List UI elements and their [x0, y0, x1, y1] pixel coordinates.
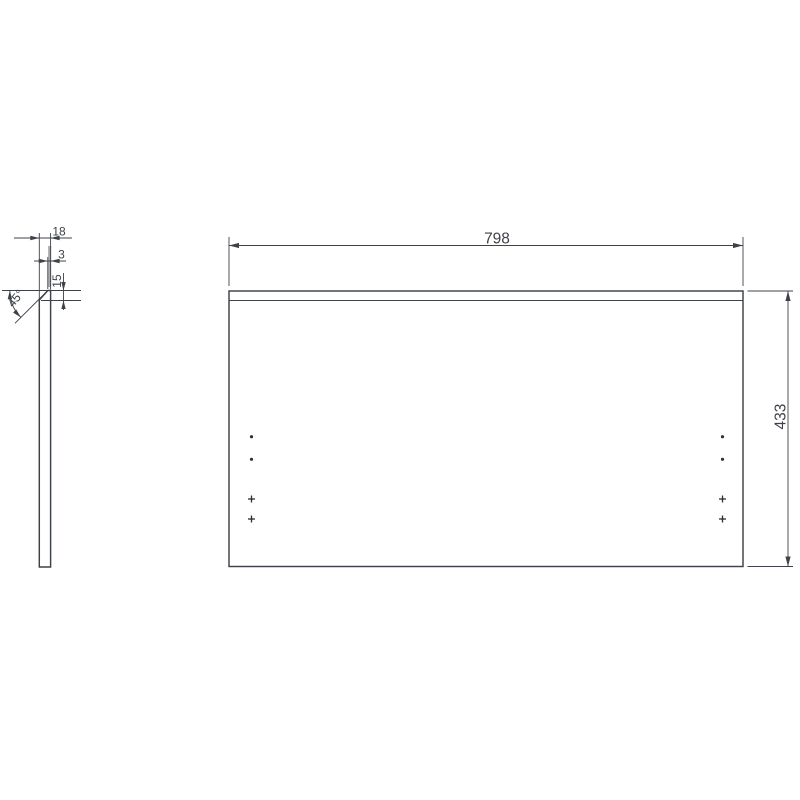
panel-profile-outline: [39, 291, 50, 568]
top-flat-label: 3: [58, 248, 65, 262]
drill-hole-cross-marker: [719, 496, 726, 503]
thickness-label: 18: [52, 225, 66, 239]
height-label: 433: [773, 404, 790, 430]
front-view: 798 433: [229, 231, 793, 567]
arrowhead: [13, 309, 21, 317]
drill-hole-marker: [250, 435, 253, 438]
dimension-thickness: 18: [14, 225, 72, 241]
panel-drawing-svg: 18 3 15: [0, 0, 800, 800]
chamfer-height-label: 15: [50, 274, 64, 288]
drill-hole-cross-marker: [248, 496, 255, 503]
width-label: 798: [484, 231, 510, 248]
dimension-height: 433: [748, 291, 794, 567]
arrowhead: [30, 236, 39, 240]
dimension-width: 798: [229, 231, 743, 287]
drill-hole-cross-marker: [248, 516, 255, 523]
drill-hole-cross-marker: [719, 516, 726, 523]
technical-drawing-canvas: 18 3 15: [0, 0, 800, 800]
dimension-chamfer-angle: 45°: [5, 287, 48, 324]
arrowhead: [39, 259, 48, 263]
arrowhead: [61, 301, 65, 310]
drill-hole-marker: [250, 458, 253, 461]
arrowhead: [229, 243, 239, 248]
arrowhead: [785, 557, 790, 567]
arrowhead: [785, 291, 790, 301]
drill-hole-marker: [721, 435, 724, 438]
drill-hole-marker: [721, 458, 724, 461]
drill-holes-right: [719, 435, 726, 522]
arrowhead: [733, 243, 743, 248]
profile-view: 18 3 15: [2, 225, 81, 568]
drill-holes-left: [248, 435, 255, 522]
panel-front-outline: [229, 291, 743, 567]
